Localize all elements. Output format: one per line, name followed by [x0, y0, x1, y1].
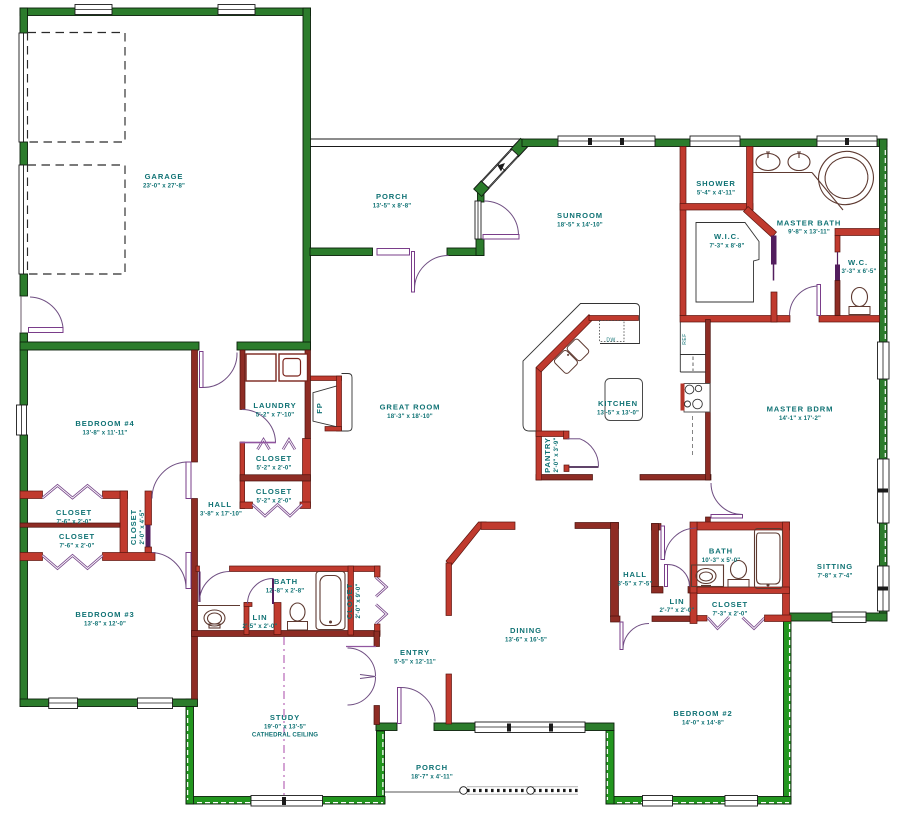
svg-text:HALL: HALL — [208, 500, 232, 509]
svg-text:CLOSET: CLOSET — [56, 508, 92, 517]
svg-text:5'-2" x 2'-0": 5'-2" x 2'-0" — [256, 498, 291, 505]
svg-text:7'-3" x 2'-0": 7'-3" x 2'-0" — [712, 611, 747, 618]
svg-text:BEDROOM #4: BEDROOM #4 — [75, 419, 134, 428]
svg-text:19'-0" x 13'-5": 19'-0" x 13'-5" — [264, 724, 306, 731]
svg-text:CLOSET: CLOSET — [256, 454, 292, 463]
svg-text:CATHEDRAL CEILING: CATHEDRAL CEILING — [252, 732, 318, 739]
svg-text:MASTER BATH: MASTER BATH — [777, 219, 842, 228]
svg-text:BEDROOM #3: BEDROOM #3 — [75, 610, 134, 619]
svg-text:9'-8" x 13'-11": 9'-8" x 13'-11" — [788, 229, 830, 236]
svg-text:FP: FP — [315, 402, 324, 414]
svg-text:PANTRY: PANTRY — [543, 437, 552, 473]
svg-text:7'-6" x 2'-0": 7'-6" x 2'-0" — [59, 543, 94, 550]
svg-text:BATH: BATH — [274, 577, 298, 586]
svg-text:18'-3" x 18'-10": 18'-3" x 18'-10" — [387, 413, 433, 420]
svg-text:CLOSET: CLOSET — [59, 532, 95, 541]
svg-text:CLOSET: CLOSET — [256, 487, 292, 496]
svg-text:CLOSET: CLOSET — [129, 509, 138, 545]
svg-text:GREAT ROOM: GREAT ROOM — [380, 403, 441, 412]
svg-text:3'-8" x 17'-10": 3'-8" x 17'-10" — [200, 511, 242, 518]
svg-text:CLOSET: CLOSET — [345, 583, 354, 619]
svg-text:HALL: HALL — [623, 570, 647, 579]
svg-text:BEDROOM #2: BEDROOM #2 — [673, 709, 732, 718]
svg-text:KITCHEN: KITCHEN — [598, 399, 638, 408]
svg-text:10'-3" x 5'-0": 10'-3" x 5'-0" — [702, 557, 741, 564]
svg-text:2'-0" x 3'-9": 2'-0" x 3'-9" — [553, 437, 560, 472]
svg-text:BATH: BATH — [709, 547, 733, 556]
svg-text:REF: REF — [682, 333, 688, 345]
svg-text:3'-3" x 6'-5": 3'-3" x 6'-5" — [841, 268, 876, 275]
svg-text:13'-8" x 12'-0": 13'-8" x 12'-0" — [84, 621, 126, 628]
svg-text:2'-7" x 2'-0": 2'-7" x 2'-0" — [659, 607, 694, 614]
svg-text:LIN: LIN — [670, 597, 685, 606]
svg-text:SUNROOM: SUNROOM — [557, 211, 603, 220]
svg-text:18'-7" x 4'-11": 18'-7" x 4'-11" — [411, 774, 453, 781]
svg-text:DINING: DINING — [510, 626, 542, 635]
svg-text:7'-3" x 8'-8": 7'-3" x 8'-8" — [709, 243, 744, 250]
svg-text:3'-5" x 7'-5": 3'-5" x 7'-5" — [617, 581, 652, 588]
svg-text:W.C.: W.C. — [848, 258, 868, 267]
svg-text:CLOSET: CLOSET — [712, 600, 748, 609]
svg-text:STUDY: STUDY — [270, 713, 300, 722]
svg-text:7'-8" x 7'-4": 7'-8" x 7'-4" — [817, 573, 852, 580]
svg-text:13'-5" x 13'-0": 13'-5" x 13'-0" — [597, 410, 639, 417]
svg-text:W.I.C.: W.I.C. — [714, 232, 740, 241]
svg-text:SITTING: SITTING — [817, 562, 853, 571]
svg-text:MASTER BDRM: MASTER BDRM — [767, 405, 834, 414]
svg-text:18'-5" x 14'-10": 18'-5" x 14'-10" — [557, 222, 603, 229]
svg-text:LIN: LIN — [253, 613, 268, 622]
svg-text:DW: DW — [606, 338, 615, 344]
svg-text:PORCH: PORCH — [376, 192, 408, 201]
svg-text:12'-8" x 2'-8": 12'-8" x 2'-8" — [266, 588, 305, 595]
svg-text:2'-0" x 9'-0": 2'-0" x 9'-0" — [355, 583, 362, 618]
svg-text:5'-2" x 7'-10": 5'-2" x 7'-10" — [256, 412, 295, 419]
svg-text:13'-5" x 8'-8": 13'-5" x 8'-8" — [373, 203, 412, 210]
svg-text:5'-2" x 2'-0": 5'-2" x 2'-0" — [256, 465, 291, 472]
svg-text:14'-0" x 14'-8": 14'-0" x 14'-8" — [682, 720, 724, 727]
svg-text:SHOWER: SHOWER — [696, 179, 736, 188]
svg-text:13'-8" x 11'-11": 13'-8" x 11'-11" — [83, 430, 128, 437]
svg-text:5'-5" x 12'-11": 5'-5" x 12'-11" — [394, 659, 436, 666]
svg-text:7'-6" x 2'-0": 7'-6" x 2'-0" — [56, 519, 91, 526]
svg-text:2'-5" x 2'-0": 2'-5" x 2'-0" — [242, 623, 277, 630]
svg-text:2'-0" x 4'-5": 2'-0" x 4'-5" — [139, 509, 146, 544]
svg-text:13'-6" x 16'-5": 13'-6" x 16'-5" — [505, 637, 547, 644]
svg-text:GARAGE: GARAGE — [145, 172, 184, 181]
svg-text:23'-0" x 27'-8": 23'-0" x 27'-8" — [143, 183, 185, 190]
svg-text:5'-4" x 4'-11": 5'-4" x 4'-11" — [697, 190, 735, 197]
svg-text:14'-1" x 17'-2": 14'-1" x 17'-2" — [779, 415, 821, 422]
svg-text:PORCH: PORCH — [416, 763, 448, 772]
svg-text:LAUNDRY: LAUNDRY — [253, 401, 296, 410]
svg-text:ENTRY: ENTRY — [400, 648, 430, 657]
